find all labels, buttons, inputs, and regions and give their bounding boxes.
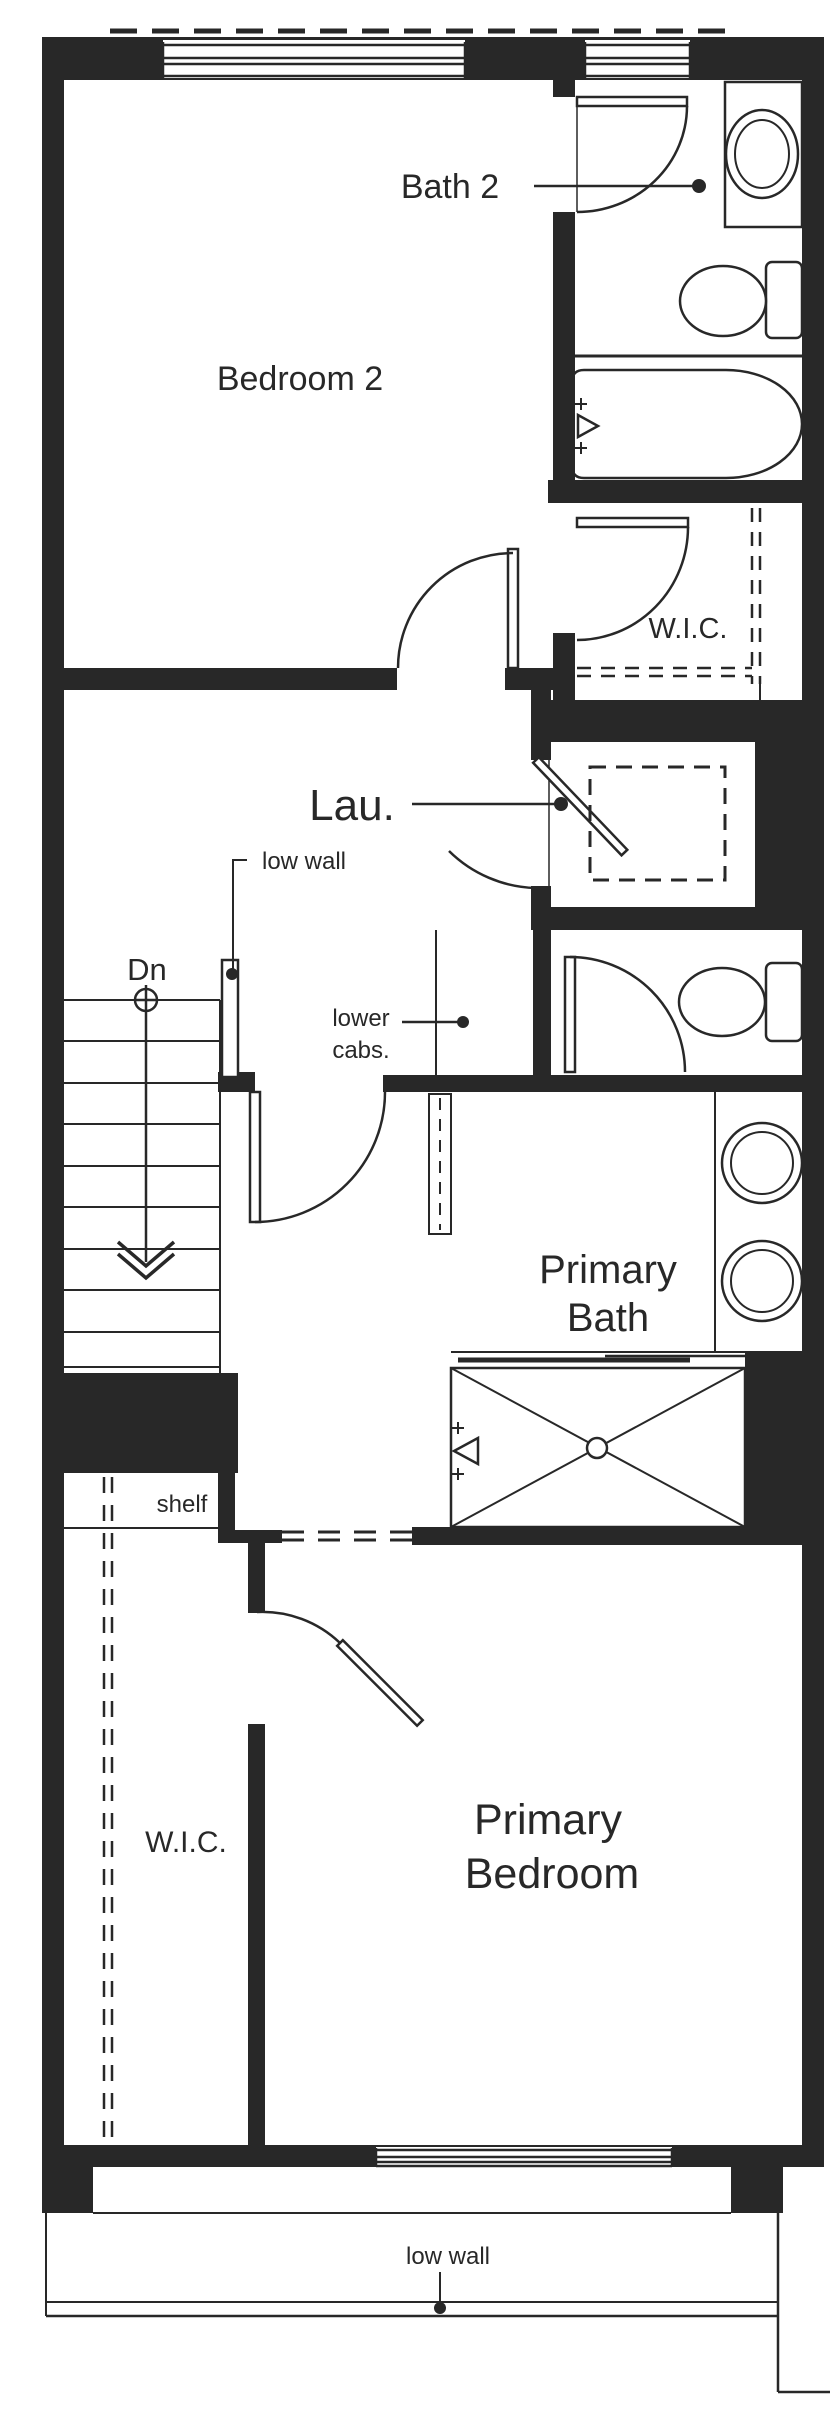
door-bedroom-2 xyxy=(398,549,518,668)
windows xyxy=(163,40,690,2166)
label-primary-bedroom-1: Primary xyxy=(474,1796,623,1844)
label-stairs-down: Dn xyxy=(127,952,167,987)
right-wall xyxy=(802,37,824,2167)
cabinet-below-wall xyxy=(429,1094,451,1234)
room-wic-lower xyxy=(64,1473,248,2145)
door-wic-lower xyxy=(257,1612,423,1726)
shower-head-icon xyxy=(452,1422,478,1480)
label-wic-lower: W.I.C. xyxy=(145,1826,227,1859)
label-low-wall-bottom: low wall xyxy=(406,2243,490,2270)
toilet-icon xyxy=(680,262,802,338)
floor-plan-page: Bath 2 Bedroom 2 W.I.C. Lau. low wall Dn… xyxy=(0,0,840,2420)
label-laundry: Lau. xyxy=(309,781,395,830)
floor-plan-drawing: Bath 2 Bedroom 2 W.I.C. Lau. low wall Dn… xyxy=(0,0,840,2420)
label-wic-upper: W.I.C. xyxy=(649,613,728,645)
toilet-icon xyxy=(679,963,802,1041)
door-water-closet xyxy=(565,957,685,1072)
leader-low-wall-bottom xyxy=(434,2272,446,2314)
faucet-icon xyxy=(575,398,598,454)
door-bath-2 xyxy=(577,97,687,212)
label-bedroom-2: Bedroom 2 xyxy=(217,360,383,398)
leader-bath2 xyxy=(534,179,706,193)
sink-vanity-icon xyxy=(725,82,802,227)
label-low-wall-mid: low wall xyxy=(262,848,346,875)
label-lower-cabs-2: cabs. xyxy=(332,1037,389,1064)
door-laundry xyxy=(449,757,627,888)
label-lower-cabs-1: lower xyxy=(332,1005,389,1032)
room-hall xyxy=(64,690,531,1073)
window-bedroom2-top xyxy=(163,40,465,78)
window-bath2-top xyxy=(585,40,690,78)
bathtub-icon xyxy=(572,370,802,478)
label-primary-bath-2: Bath xyxy=(567,1296,649,1340)
room-primary-bedroom xyxy=(265,1545,802,2145)
label-shelf: shelf xyxy=(157,1491,208,1518)
window-primary-bedroom-bottom xyxy=(376,2147,672,2166)
bath2-fixtures xyxy=(572,82,802,478)
shower-pan-icon xyxy=(451,1368,745,1527)
left-wall xyxy=(42,37,64,2167)
leader-laundry xyxy=(412,797,568,811)
rooms xyxy=(46,80,802,2316)
stairs-down-arrow xyxy=(118,985,174,1278)
label-primary-bedroom-2: Bedroom xyxy=(465,1850,639,1898)
label-primary-bath-1: Primary xyxy=(539,1248,677,1292)
stacked-washer-dryer-icon xyxy=(590,767,725,880)
door-hall xyxy=(250,1092,385,1222)
round-sink-icon xyxy=(722,1241,802,1321)
interior-walls xyxy=(42,80,804,2213)
staircase xyxy=(64,960,238,1373)
round-sink-icon xyxy=(722,1123,802,1203)
label-bath-2: Bath 2 xyxy=(401,168,499,206)
dashed-elements xyxy=(104,508,760,2142)
